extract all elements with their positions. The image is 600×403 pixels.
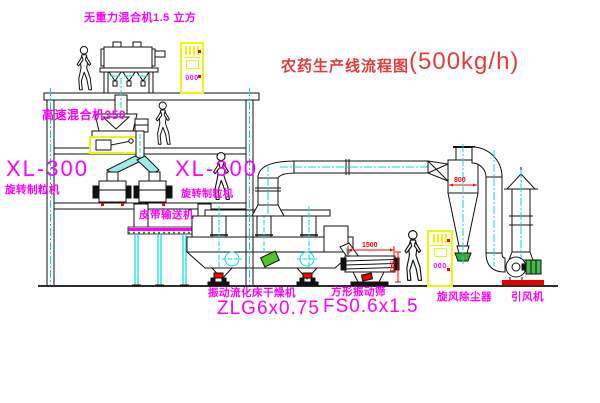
label-granulator-right-model: XL-300 <box>175 158 258 180</box>
cad-flow-diagram: 000 000 农药生产线流程图 (500kg/h) 无重力混合机1.5 立方 … <box>0 0 600 403</box>
dim-sieve-length: 1500 <box>362 242 378 249</box>
title-capacity: (500kg/h) <box>409 48 519 76</box>
dim-sieve-height: 541 <box>388 261 395 273</box>
exhaust-stack <box>504 167 538 262</box>
label-granulator-left-name: 旋转制粒机 <box>5 185 60 196</box>
dryer-exhaust-duct <box>252 159 442 216</box>
label-fan: 引风机 <box>511 292 544 303</box>
dim-cyclone-diameter: 800 <box>454 177 466 184</box>
fluid-bed-dryer-machine <box>187 206 359 285</box>
cabinet-panel <box>434 248 447 257</box>
drawing-title: 农药生产线流程图 (500kg/h) <box>281 48 519 76</box>
granulator-right-machine <box>134 181 172 202</box>
label-cyclone: 旋风除尘器 <box>437 292 492 303</box>
cabinet-panel <box>186 60 199 69</box>
induced-draft-fan-machine <box>502 257 544 285</box>
belt-conveyor-machine <box>128 227 196 285</box>
person-figure <box>77 47 91 90</box>
label-belt-conveyor: 皮带输送机 <box>139 210 194 221</box>
label-high-speed-mixer: 高速混合机350 <box>42 109 126 121</box>
label-dryer-model: ZLG6x0.75 <box>217 299 320 318</box>
label-granulator-right-name: 旋转制粒机 <box>181 190 234 200</box>
control-cabinet-right: 000 <box>427 230 453 287</box>
gravity-mixer-machine <box>100 42 165 93</box>
title-text: 农药生产线流程图 <box>281 55 409 76</box>
label-sieve-model: FS0.6x1.5 <box>323 297 419 316</box>
granulator-left-machine <box>93 181 131 202</box>
control-cabinet-top: 000 <box>180 42 204 94</box>
label-granulator-left-model: XL-300 <box>6 158 89 180</box>
label-dryer-name: 振动流化床干燥机 <box>208 288 296 299</box>
label-gravity-mixer: 无重力混合机1.5 立方 <box>84 13 196 24</box>
person-figure <box>405 231 422 281</box>
person-figure <box>156 102 170 144</box>
